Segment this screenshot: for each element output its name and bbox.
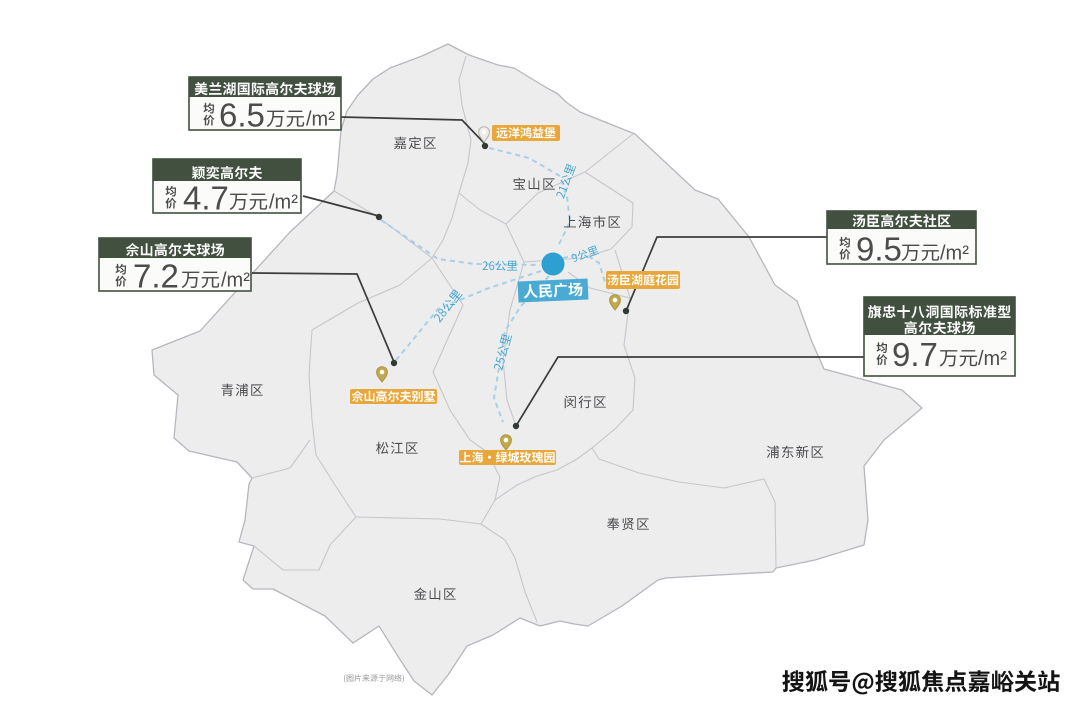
svg-text:9.5: 9.5 <box>856 231 902 268</box>
svg-text:9.7: 9.7 <box>892 336 938 373</box>
svg-text:4.7: 4.7 <box>183 180 229 217</box>
svg-text:7.2: 7.2 <box>133 258 179 295</box>
svg-text:/m²: /m² <box>978 348 1007 370</box>
svg-text:6.5: 6.5 <box>219 97 265 134</box>
svg-text:/m²: /m² <box>306 109 335 131</box>
svg-text:/m²: /m² <box>940 243 969 265</box>
svg-text:/m²: /m² <box>221 270 250 292</box>
svg-text:/m²: /m² <box>269 192 298 214</box>
